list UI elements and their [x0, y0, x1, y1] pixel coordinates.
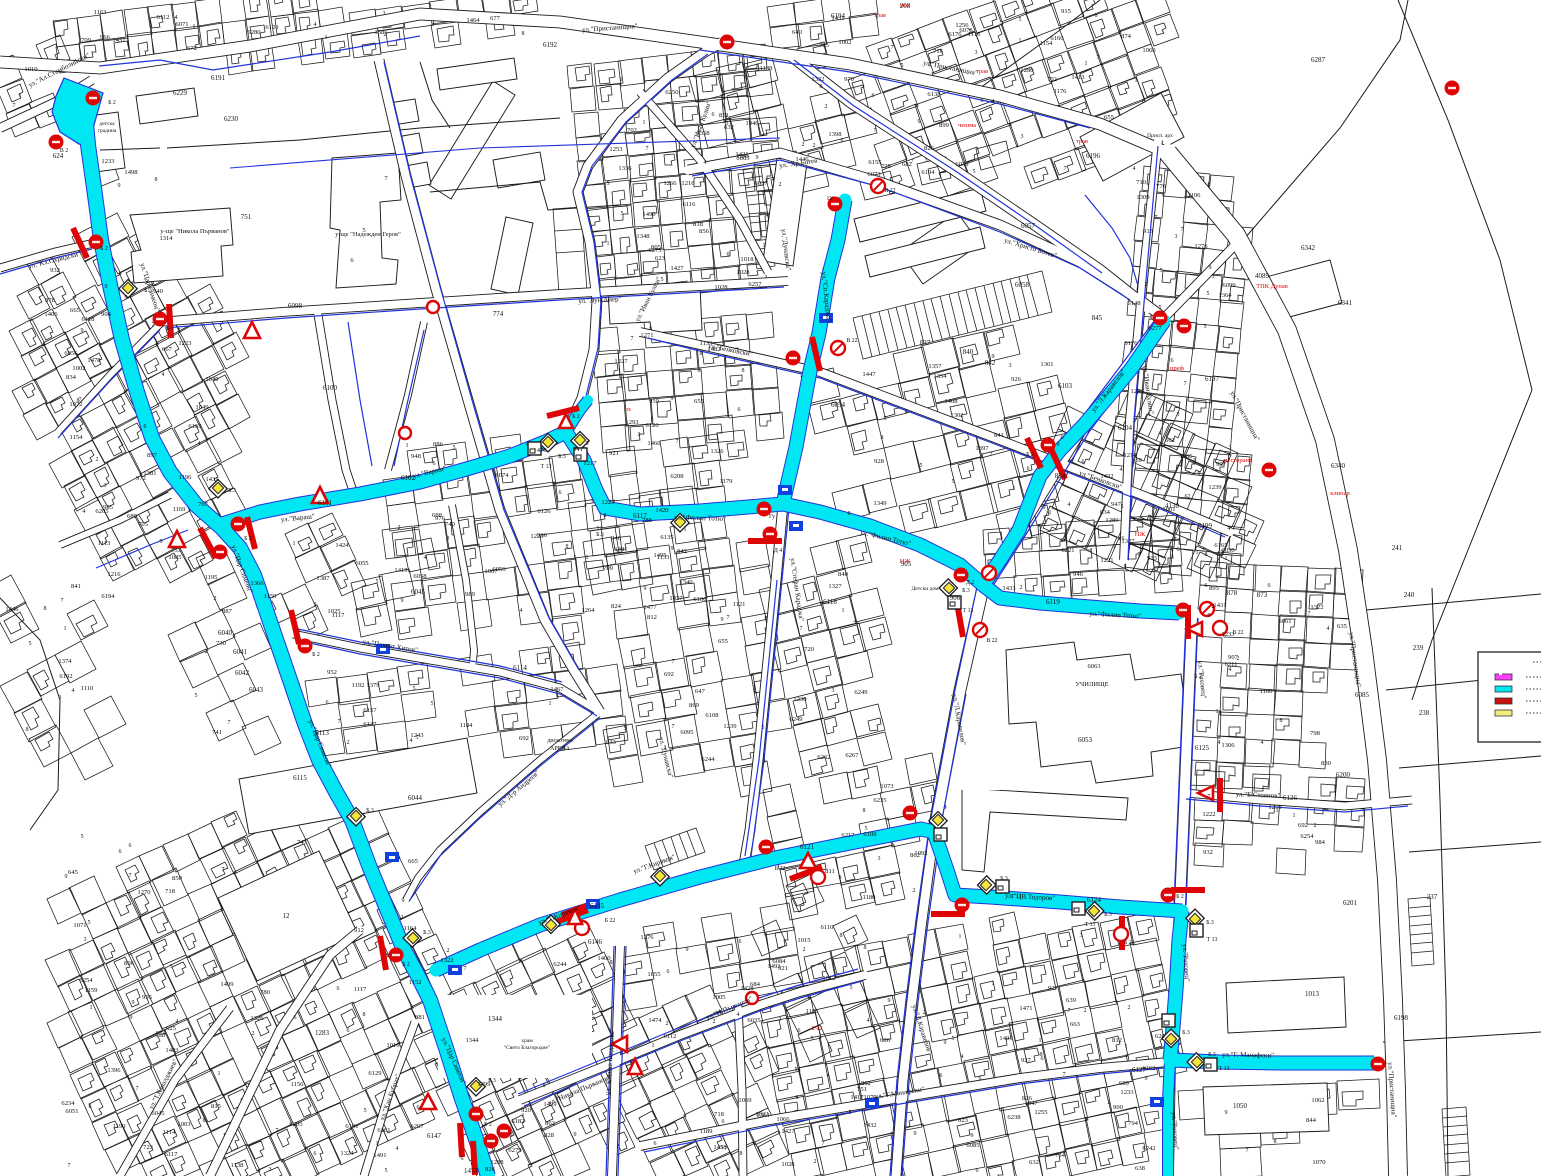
svg-text:989: 989: [465, 591, 476, 598]
svg-text:959: 959: [1132, 457, 1143, 464]
svg-text:7: 7: [969, 29, 972, 35]
svg-text:6191: 6191: [211, 74, 226, 82]
svg-text:1002: 1002: [838, 39, 851, 46]
svg-text:ресторант: ресторант: [1224, 457, 1252, 464]
svg-text:2: 2: [96, 457, 99, 463]
svg-text:1: 1: [293, 541, 296, 547]
svg-text:6: 6: [1061, 435, 1064, 441]
svg-text:Б 2: Б 2: [572, 414, 580, 420]
svg-text:705: 705: [138, 521, 149, 528]
svg-text:8: 8: [820, 84, 823, 90]
svg-text:1431: 1431: [831, 15, 844, 22]
svg-text:4: 4: [704, 160, 707, 166]
svg-text:4: 4: [83, 509, 86, 515]
svg-text:3: 3: [59, 695, 62, 701]
svg-text:6103: 6103: [1058, 382, 1073, 390]
svg-text:1: 1: [643, 120, 646, 126]
svg-text:6138: 6138: [927, 91, 941, 98]
svg-text:2: 2: [825, 104, 828, 110]
svg-text:6118: 6118: [82, 316, 96, 323]
svg-text:655: 655: [1104, 114, 1115, 121]
svg-text:995: 995: [142, 994, 153, 1001]
svg-text:1432: 1432: [1100, 473, 1113, 480]
svg-text:АРЕНА: АРЕНА: [550, 746, 571, 752]
svg-text:1: 1: [90, 1005, 93, 1011]
svg-text:1049: 1049: [195, 404, 209, 411]
svg-text:840: 840: [963, 348, 974, 356]
svg-text:869: 869: [689, 702, 700, 709]
svg-text:6234: 6234: [61, 1100, 75, 1107]
svg-text:6: 6: [667, 969, 670, 975]
svg-text:6126: 6126: [537, 508, 551, 515]
svg-text:2: 2: [205, 649, 208, 655]
svg-text:873: 873: [1257, 591, 1268, 599]
svg-text:692: 692: [664, 671, 674, 678]
svg-text:841: 841: [994, 432, 1004, 439]
svg-text:Д 2: Д 2: [966, 580, 974, 586]
svg-text:1464: 1464: [466, 17, 480, 24]
svg-text:1408: 1408: [944, 398, 958, 405]
svg-text:1270: 1270: [137, 889, 151, 896]
svg-text:6119: 6119: [1046, 598, 1060, 606]
svg-text:900: 900: [1113, 1104, 1124, 1111]
svg-text:9: 9: [314, 602, 317, 608]
svg-text:3: 3: [1276, 808, 1279, 814]
svg-text:881: 881: [415, 1014, 425, 1021]
svg-text:6137: 6137: [363, 721, 377, 728]
svg-text:6: 6: [294, 1015, 297, 1021]
svg-text:клипар: клипар: [1330, 490, 1350, 497]
svg-text:2: 2: [1108, 1100, 1111, 1106]
svg-text:1: 1: [1169, 542, 1172, 548]
svg-text:5: 5: [661, 277, 664, 283]
svg-text:6120: 6120: [265, 24, 279, 31]
svg-text:6341: 6341: [1338, 299, 1353, 307]
svg-text:6: 6: [798, 1028, 801, 1034]
svg-text:6058: 6058: [413, 573, 427, 580]
svg-text:4: 4: [1120, 467, 1123, 473]
svg-text:3: 3: [832, 688, 835, 694]
svg-text:709: 709: [81, 37, 92, 44]
svg-text:940: 940: [153, 288, 164, 295]
svg-text:818: 818: [693, 221, 704, 228]
svg-text:1327: 1327: [828, 583, 842, 590]
svg-text:1138: 1138: [231, 1162, 245, 1169]
svg-text:833: 833: [606, 739, 617, 746]
svg-text:6125: 6125: [1195, 744, 1210, 752]
svg-text:751: 751: [857, 1086, 867, 1093]
svg-text:6099: 6099: [1222, 282, 1236, 289]
svg-text:6161: 6161: [377, 1127, 390, 1134]
svg-text:1105: 1105: [806, 1008, 820, 1015]
svg-text:8: 8: [363, 1012, 366, 1018]
svg-text:640: 640: [792, 29, 803, 36]
svg-text:948: 948: [411, 453, 422, 460]
svg-text:7: 7: [646, 146, 649, 152]
svg-text:6: 6: [347, 1028, 350, 1034]
svg-text:1467: 1467: [550, 686, 564, 693]
svg-text:1476: 1476: [533, 447, 547, 454]
svg-text:8: 8: [1205, 552, 1208, 558]
svg-text:1326: 1326: [710, 448, 724, 455]
svg-text:6042: 6042: [235, 669, 250, 677]
svg-text:1334: 1334: [933, 373, 947, 380]
svg-text:9: 9: [132, 1000, 135, 1006]
svg-text:1: 1: [325, 35, 328, 41]
svg-text:9: 9: [105, 284, 108, 290]
svg-text:815: 815: [211, 1103, 222, 1110]
svg-text:7: 7: [1208, 794, 1211, 800]
svg-text:9: 9: [1043, 505, 1046, 511]
svg-text:941: 941: [573, 446, 583, 453]
svg-text:6165: 6165: [1214, 542, 1228, 549]
svg-text:4: 4: [1218, 740, 1221, 746]
svg-text:7: 7: [822, 1141, 825, 1147]
svg-text:6267: 6267: [845, 752, 859, 759]
svg-text:6182: 6182: [511, 1118, 524, 1125]
svg-text:1223: 1223: [178, 340, 192, 347]
svg-text:6085: 6085: [1355, 691, 1370, 699]
svg-text:6: 6: [461, 1156, 464, 1162]
svg-text:6160: 6160: [693, 596, 707, 603]
svg-text:6101: 6101: [318, 499, 333, 507]
svg-text:3: 3: [269, 1167, 272, 1173]
svg-text:6205: 6205: [289, 1121, 303, 1128]
svg-text:927: 927: [1048, 985, 1059, 992]
svg-text:Т 13: Т 13: [1011, 894, 1022, 900]
svg-text:1: 1: [1193, 458, 1196, 464]
svg-text:1474: 1474: [464, 1167, 479, 1175]
svg-text:776: 776: [1156, 183, 1167, 190]
svg-text:907: 907: [1228, 654, 1239, 661]
svg-text:6191: 6191: [345, 1123, 358, 1130]
svg-text:1046: 1046: [745, 120, 759, 127]
svg-text:1010: 1010: [24, 66, 38, 73]
svg-text:780: 780: [260, 989, 271, 996]
svg-text:В 2: В 2: [60, 148, 68, 154]
svg-text:5: 5: [795, 1067, 798, 1073]
svg-text:767: 767: [198, 501, 209, 508]
svg-text:845: 845: [1092, 314, 1103, 322]
svg-text:1117: 1117: [332, 612, 345, 619]
svg-text:5: 5: [850, 985, 853, 991]
svg-text:2: 2: [923, 1010, 926, 1016]
svg-text:895: 895: [1209, 585, 1220, 592]
svg-text:5: 5: [952, 1036, 955, 1042]
svg-text:В 22: В 22: [884, 188, 895, 194]
svg-text:8: 8: [203, 1118, 206, 1124]
svg-text:5: 5: [1159, 305, 1162, 311]
svg-text:3: 3: [975, 50, 978, 56]
svg-text:6257: 6257: [748, 281, 762, 288]
svg-text:1117: 1117: [354, 986, 367, 993]
svg-text:6053: 6053: [1078, 736, 1093, 744]
svg-text:1062: 1062: [1311, 1097, 1324, 1104]
svg-text:6279: 6279: [508, 1147, 522, 1154]
svg-text:9: 9: [1145, 1076, 1148, 1082]
svg-text:6129: 6129: [368, 1070, 382, 1077]
svg-text:7: 7: [1097, 55, 1100, 61]
svg-text:6250: 6250: [665, 89, 679, 96]
svg-text:730: 730: [216, 640, 227, 647]
svg-text:623: 623: [655, 255, 666, 262]
svg-text:7: 7: [1174, 537, 1177, 543]
svg-text:1348: 1348: [636, 233, 650, 240]
svg-text:6192: 6192: [59, 673, 72, 680]
svg-text:718: 718: [714, 1111, 725, 1118]
svg-text:1015: 1015: [797, 937, 811, 944]
svg-text:689: 689: [127, 513, 138, 520]
svg-text:7: 7: [1184, 381, 1187, 387]
svg-text:6126: 6126: [645, 422, 659, 429]
svg-text:Б 1: Б 1: [166, 326, 174, 332]
svg-text:239: 239: [1413, 644, 1424, 652]
svg-text:6: 6: [417, 1105, 420, 1111]
svg-text:710: 710: [1136, 179, 1147, 186]
svg-text:7: 7: [68, 1163, 71, 1169]
svg-text:1: 1: [620, 77, 623, 83]
svg-text:6146: 6146: [588, 938, 603, 946]
svg-text:1427: 1427: [781, 1128, 795, 1135]
svg-text:7: 7: [464, 966, 467, 972]
svg-text:вх: вх: [625, 406, 632, 413]
svg-text:1366: 1366: [250, 580, 264, 587]
svg-text:4: 4: [1261, 740, 1264, 746]
svg-text:5: 5: [1207, 291, 1210, 297]
svg-text:1216: 1216: [681, 180, 695, 187]
svg-text:5: 5: [762, 725, 765, 731]
svg-text:798: 798: [1310, 730, 1321, 737]
svg-text:1482: 1482: [707, 346, 720, 353]
svg-text:1289: 1289: [1105, 517, 1119, 524]
svg-text:1133: 1133: [657, 554, 671, 561]
svg-text:Т 13: Т 13: [541, 464, 552, 470]
svg-text:1192: 1192: [352, 682, 365, 689]
svg-text:9: 9: [732, 88, 735, 94]
svg-text:1387: 1387: [316, 575, 330, 582]
svg-text:7: 7: [1246, 1148, 1249, 1154]
svg-text:2: 2: [1084, 1008, 1087, 1014]
svg-text:6: 6: [337, 986, 340, 992]
svg-text:1: 1: [959, 934, 962, 940]
svg-text:6: 6: [1177, 547, 1180, 553]
svg-text:878: 878: [1227, 589, 1238, 597]
svg-text:2: 2: [1020, 585, 1023, 591]
svg-text:1195: 1195: [205, 574, 219, 581]
svg-text:6054: 6054: [831, 401, 846, 409]
svg-text:6242: 6242: [1142, 1145, 1155, 1152]
svg-text:6207: 6207: [410, 1123, 424, 1130]
svg-text:Детски дом: Детски дом: [911, 586, 939, 592]
svg-text:Б.3: Б.3: [1208, 1052, 1216, 1058]
svg-text:7: 7: [990, 452, 993, 458]
svg-text:1417: 1417: [850, 1094, 864, 1101]
svg-text:9: 9: [756, 155, 759, 161]
svg-text:718: 718: [165, 888, 176, 895]
svg-text:6217: 6217: [841, 832, 855, 839]
svg-text:4: 4: [1327, 626, 1330, 632]
svg-text:933: 933: [1147, 555, 1158, 562]
svg-text:9: 9: [125, 295, 128, 301]
svg-text:684: 684: [750, 981, 761, 988]
svg-text:9: 9: [671, 396, 674, 402]
svg-text:НЖ: НЖ: [900, 558, 911, 565]
svg-text:841: 841: [71, 583, 81, 590]
svg-text:837: 837: [920, 339, 931, 347]
svg-text:1: 1: [1216, 709, 1219, 715]
svg-text:5: 5: [385, 1168, 388, 1174]
svg-text:2: 2: [1090, 548, 1093, 554]
svg-text:1349: 1349: [873, 500, 887, 507]
svg-text:6104: 6104: [1118, 424, 1133, 432]
svg-text:1227: 1227: [614, 358, 628, 365]
svg-text:3: 3: [1080, 933, 1083, 939]
svg-text:6: 6: [433, 461, 436, 467]
svg-text:9: 9: [1225, 1110, 1228, 1116]
svg-text:6108: 6108: [705, 712, 719, 719]
svg-text:740: 740: [445, 521, 456, 528]
svg-text:1302: 1302: [950, 412, 963, 419]
svg-text:6116: 6116: [683, 201, 697, 208]
svg-text:8: 8: [1040, 1052, 1043, 1058]
svg-text:1: 1: [1196, 550, 1199, 556]
svg-text:8: 8: [698, 368, 701, 374]
svg-text:Б 2: Б 2: [1124, 940, 1132, 946]
svg-text:6: 6: [739, 939, 742, 945]
svg-text:1: 1: [406, 443, 409, 449]
svg-text:Б.3: Б.3: [558, 454, 566, 460]
svg-text:3: 3: [1021, 134, 1024, 140]
svg-text:3: 3: [1212, 274, 1215, 280]
svg-text:1106: 1106: [1188, 192, 1202, 199]
svg-text:1256: 1256: [955, 22, 969, 29]
svg-text:2: 2: [384, 32, 387, 38]
svg-text:9: 9: [65, 874, 68, 880]
svg-text:8: 8: [840, 933, 843, 939]
svg-text:927: 927: [1021, 1057, 1032, 1064]
svg-text:1446: 1446: [5, 606, 19, 613]
svg-text:5: 5: [763, 927, 766, 933]
svg-text:878: 878: [45, 297, 56, 304]
svg-text:959: 959: [649, 398, 660, 405]
svg-text:7: 7: [672, 724, 675, 730]
svg-text:Б.3: Б.3: [488, 1078, 496, 1084]
svg-text:826: 826: [1022, 1095, 1033, 1102]
svg-text:6194: 6194: [921, 169, 935, 176]
svg-text:Д 4: Д 4: [774, 548, 782, 554]
svg-text:градина: градина: [98, 128, 117, 134]
svg-text:НЖ: НЖ: [1135, 531, 1146, 538]
svg-text:5: 5: [1085, 1117, 1088, 1123]
svg-text:6262: 6262: [817, 754, 830, 761]
svg-text:2: 2: [1188, 494, 1191, 500]
svg-text:1: 1: [607, 241, 610, 247]
svg-text:842: 842: [985, 359, 996, 367]
svg-text:237: 237: [1427, 893, 1438, 901]
svg-text:7: 7: [676, 439, 679, 445]
svg-text:620: 620: [1155, 1033, 1166, 1040]
svg-text:844: 844: [1306, 1117, 1317, 1124]
svg-text:5: 5: [431, 701, 434, 707]
svg-text:6110: 6110: [821, 924, 835, 931]
svg-text:9: 9: [839, 875, 842, 881]
svg-text:812: 812: [647, 614, 657, 621]
svg-text:8: 8: [742, 368, 745, 374]
svg-text:826: 826: [924, 145, 935, 152]
svg-text:1276: 1276: [1194, 243, 1208, 250]
svg-text:4: 4: [737, 1012, 740, 1018]
svg-text:6148: 6148: [1127, 300, 1141, 307]
svg-text:6194: 6194: [101, 593, 115, 600]
svg-text:6275: 6275: [648, 247, 662, 254]
svg-text:2: 2: [398, 525, 401, 531]
svg-text:1150: 1150: [264, 593, 278, 600]
svg-text:1: 1: [1013, 486, 1016, 492]
svg-text:Гу: Гу: [769, 514, 775, 520]
svg-text:887: 887: [222, 608, 233, 615]
svg-text:6: 6: [722, 1119, 725, 1125]
svg-text:6238: 6238: [1007, 1114, 1021, 1121]
svg-text:4: 4: [992, 99, 995, 105]
svg-text:6198: 6198: [1394, 1014, 1409, 1022]
svg-text:1050: 1050: [1233, 1102, 1248, 1110]
svg-text:Б 22: Б 22: [775, 866, 786, 872]
svg-text:970: 970: [844, 76, 855, 83]
svg-text:Б 22: Б 22: [605, 918, 616, 924]
svg-text:6135: 6135: [660, 534, 674, 541]
svg-text:5: 5: [920, 463, 923, 469]
svg-text:946: 946: [611, 535, 622, 542]
svg-text:1364: 1364: [1218, 292, 1232, 299]
svg-text:1221: 1221: [601, 499, 614, 506]
svg-text:9: 9: [401, 598, 404, 604]
svg-text:1499: 1499: [543, 1101, 557, 1108]
svg-text:720: 720: [804, 646, 815, 653]
svg-text:9: 9: [81, 328, 84, 334]
svg-text:6147: 6147: [427, 1132, 442, 1140]
svg-text:6: 6: [712, 112, 715, 118]
svg-text:1498: 1498: [124, 169, 138, 176]
svg-text:2: 2: [814, 1159, 817, 1165]
svg-text:851: 851: [719, 112, 729, 119]
svg-text:6340: 6340: [1331, 462, 1346, 470]
svg-text:984: 984: [1315, 839, 1326, 846]
svg-text:828: 828: [544, 1132, 555, 1139]
svg-text:1: 1: [733, 198, 736, 204]
svg-text:751: 751: [241, 213, 252, 221]
svg-text:632: 632: [724, 124, 734, 131]
svg-text:6229: 6229: [173, 89, 188, 97]
svg-text:6244: 6244: [553, 961, 567, 968]
svg-text:5: 5: [88, 920, 91, 926]
svg-text:1230: 1230: [793, 696, 807, 703]
svg-text:928: 928: [874, 458, 885, 465]
svg-text:6: 6: [940, 1073, 943, 1079]
svg-text:1398: 1398: [828, 131, 842, 138]
svg-text:9: 9: [944, 1040, 947, 1046]
svg-text:912: 912: [354, 927, 364, 934]
svg-text:1397: 1397: [975, 445, 989, 452]
svg-text:623: 623: [958, 1117, 969, 1124]
svg-text:5: 5: [952, 479, 955, 485]
svg-text:906: 906: [950, 594, 961, 602]
svg-text:1431: 1431: [205, 476, 218, 483]
svg-text:Б.3: Б.3: [1182, 1030, 1190, 1036]
svg-text:812: 812: [1112, 1037, 1122, 1044]
svg-text:1184: 1184: [460, 722, 474, 729]
svg-text:241: 241: [1392, 544, 1403, 552]
svg-text:1401: 1401: [999, 1035, 1012, 1042]
